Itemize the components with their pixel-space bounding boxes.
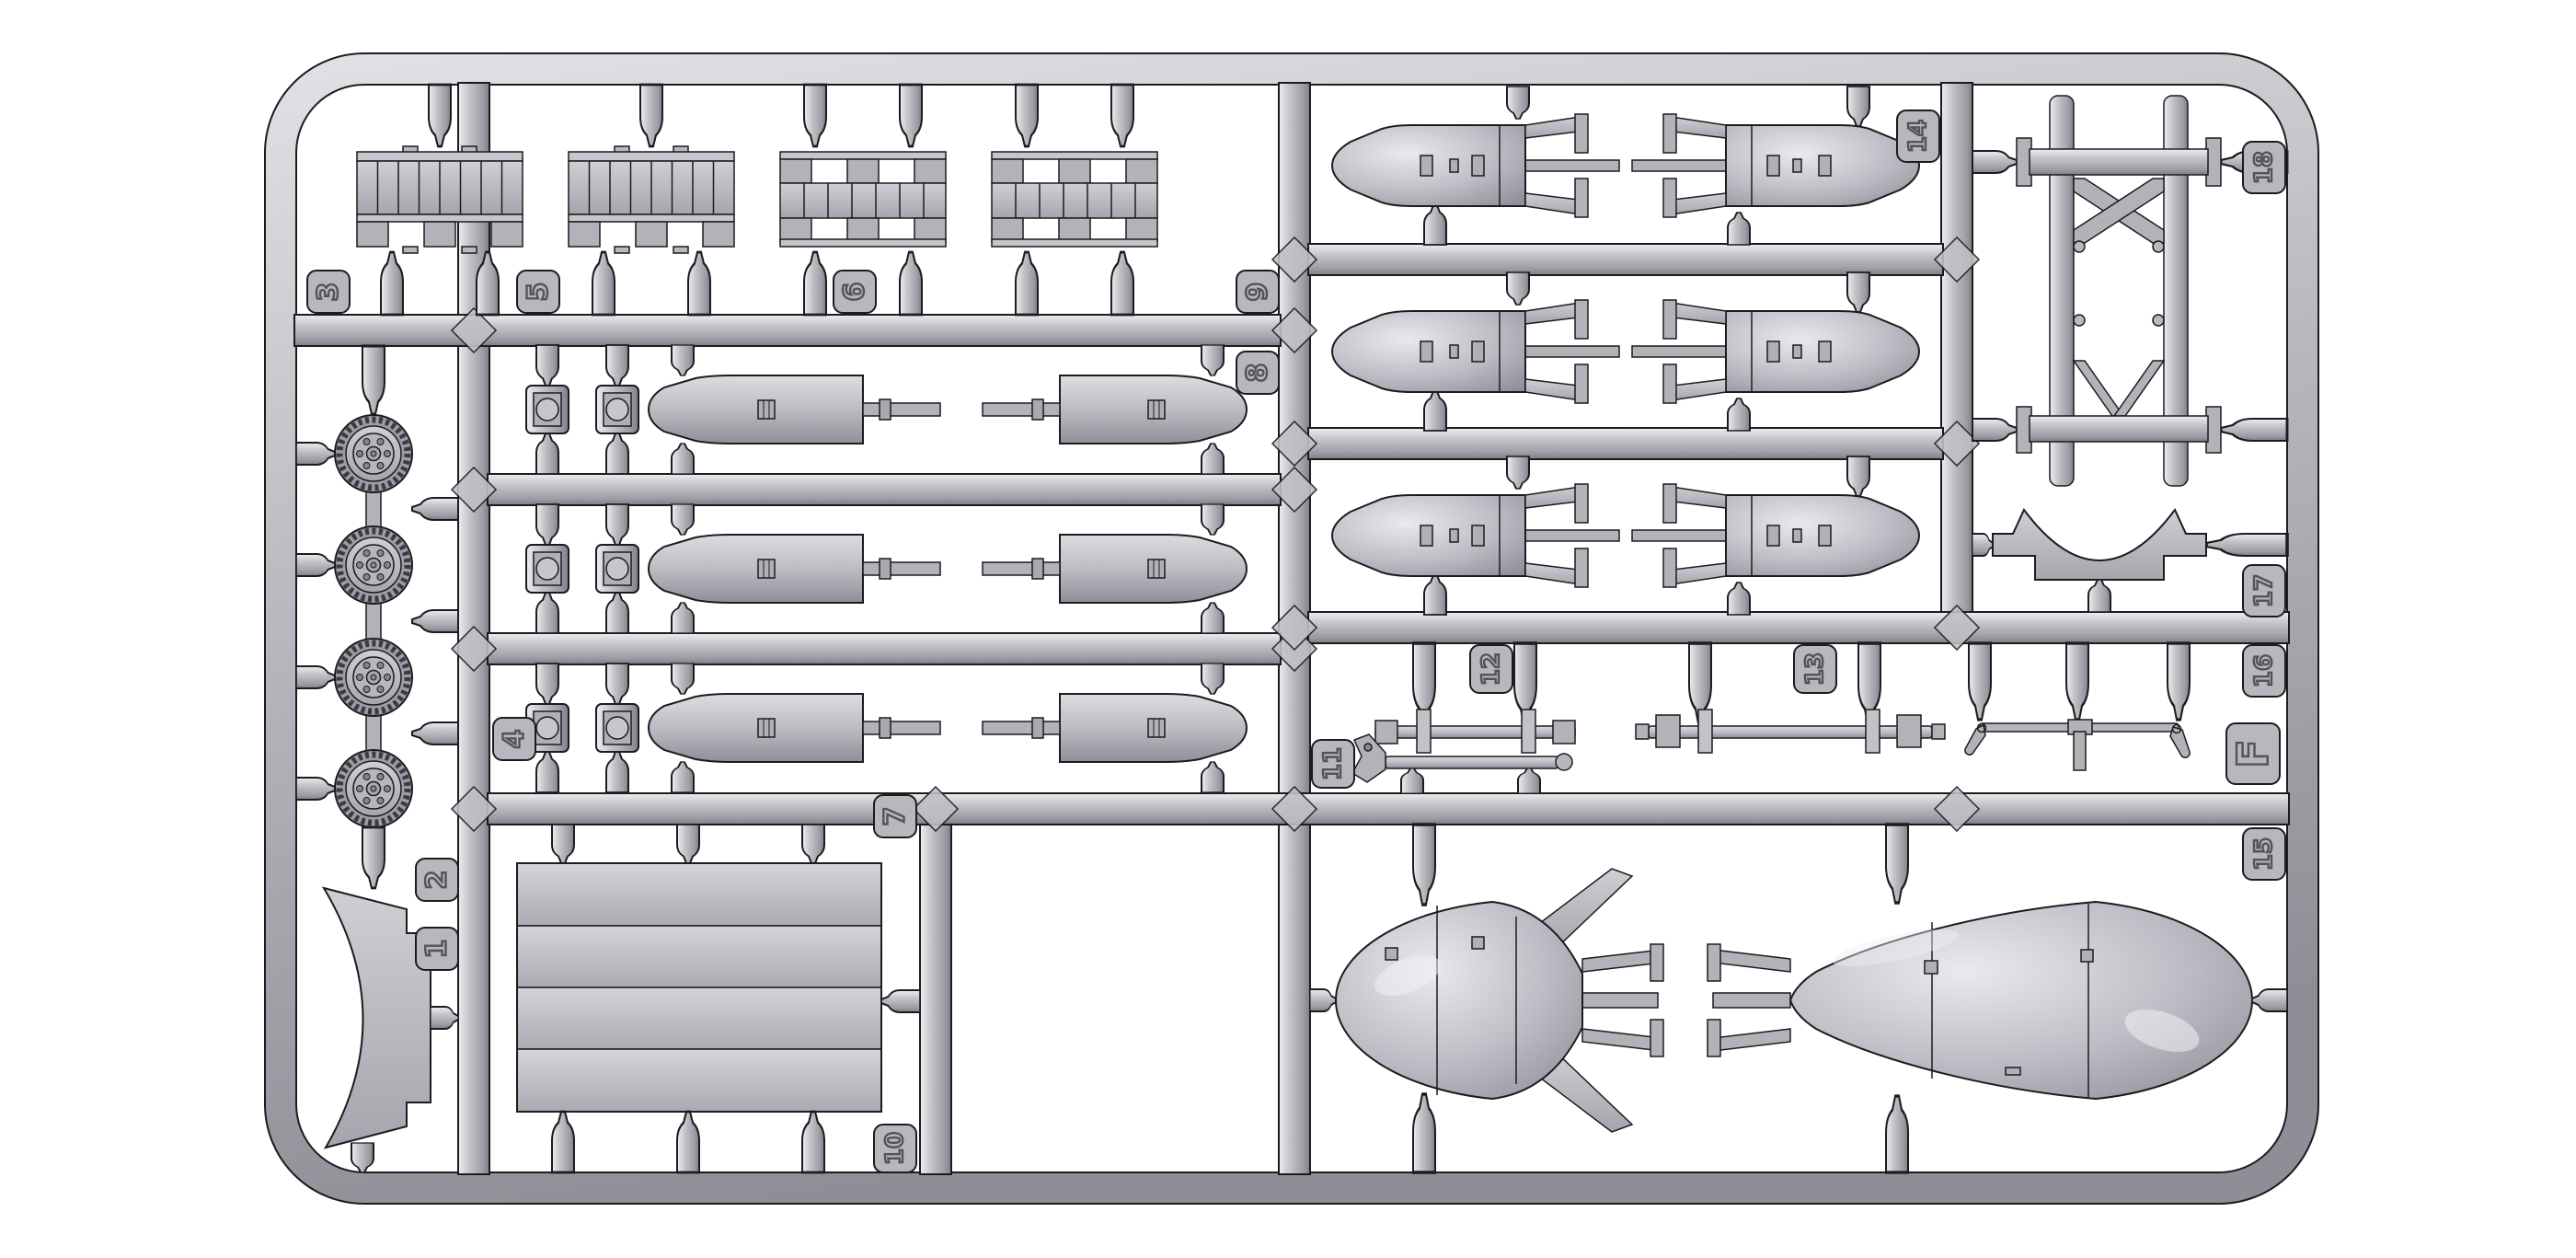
part-pallet-1: [357, 146, 523, 253]
tag-16-label: 16: [2250, 654, 2278, 687]
tag-3-label: 3: [313, 283, 345, 302]
tag-11-label: 11: [1319, 747, 1347, 780]
tag-17-label: 17: [2250, 574, 2278, 607]
tag-13: 13: [1794, 645, 1836, 693]
tag-13-label: 13: [1801, 652, 1829, 686]
tag-6-label: 6: [839, 283, 871, 302]
tag-F-label: F: [2228, 739, 2278, 767]
tag-15-label: 15: [2250, 837, 2278, 871]
tag-18-label: 18: [2250, 151, 2278, 184]
tag-9: 9: [1236, 271, 1279, 313]
drop-tank-rows: [526, 345, 1247, 792]
tag-7-label: 7: [880, 807, 912, 826]
tag-1-label: 1: [421, 940, 454, 959]
runner-v-box: [920, 808, 951, 1174]
road-wheel-2: [335, 526, 412, 604]
tag-7: 7: [874, 795, 916, 837]
tag-3: 3: [307, 271, 350, 313]
tag-17: 17: [2243, 565, 2285, 617]
tag-1: 1: [416, 928, 458, 970]
runner-hr3: [1308, 612, 2289, 643]
tag-10: 10: [874, 1125, 916, 1172]
tag-F: F: [2226, 723, 2280, 784]
tag-4: 4: [493, 718, 535, 760]
tag-15: 15: [2243, 828, 2285, 880]
runner-h2: [488, 474, 1281, 505]
tag-14-label: 14: [1904, 120, 1932, 153]
tag-12: 12: [1470, 645, 1512, 693]
tag-16: 16: [2243, 645, 2285, 697]
tag-9-label: 9: [1242, 283, 1274, 302]
tag-4-label: 4: [499, 730, 531, 749]
runner-h1: [294, 315, 1281, 346]
road-wheel-1: [335, 415, 412, 492]
tag-18: 18: [2243, 142, 2285, 193]
road-wheel-4: [335, 750, 412, 827]
tag-2: 2: [416, 859, 458, 901]
runner-hr2: [1308, 428, 1943, 459]
road-wheel-3: [335, 639, 412, 716]
runner-v3: [1941, 83, 1972, 643]
tag-8-label: 8: [1242, 364, 1274, 383]
sprue-render-page: 123456789101112131415161718F: [0, 0, 2576, 1258]
part-pallet-3: [780, 152, 946, 247]
tag-5-label: 5: [523, 283, 555, 302]
tag-2-label: 2: [421, 871, 454, 890]
tag-5: 5: [517, 271, 559, 313]
tag-8: 8: [1236, 352, 1279, 394]
tag-11: 11: [1312, 740, 1354, 788]
runner-h4: [488, 793, 2289, 825]
runner-h3: [488, 633, 1281, 664]
part-pallet-2: [569, 146, 734, 253]
sprue-f-render: 123456789101112131415161718F: [0, 0, 2576, 1258]
tag-12-label: 12: [1478, 652, 1505, 686]
tag-14: 14: [1897, 110, 1939, 162]
part-pallet-4: [992, 152, 1157, 247]
tag-6: 6: [834, 271, 876, 313]
runner-hr1: [1308, 244, 1943, 275]
tag-10-label: 10: [881, 1132, 909, 1165]
